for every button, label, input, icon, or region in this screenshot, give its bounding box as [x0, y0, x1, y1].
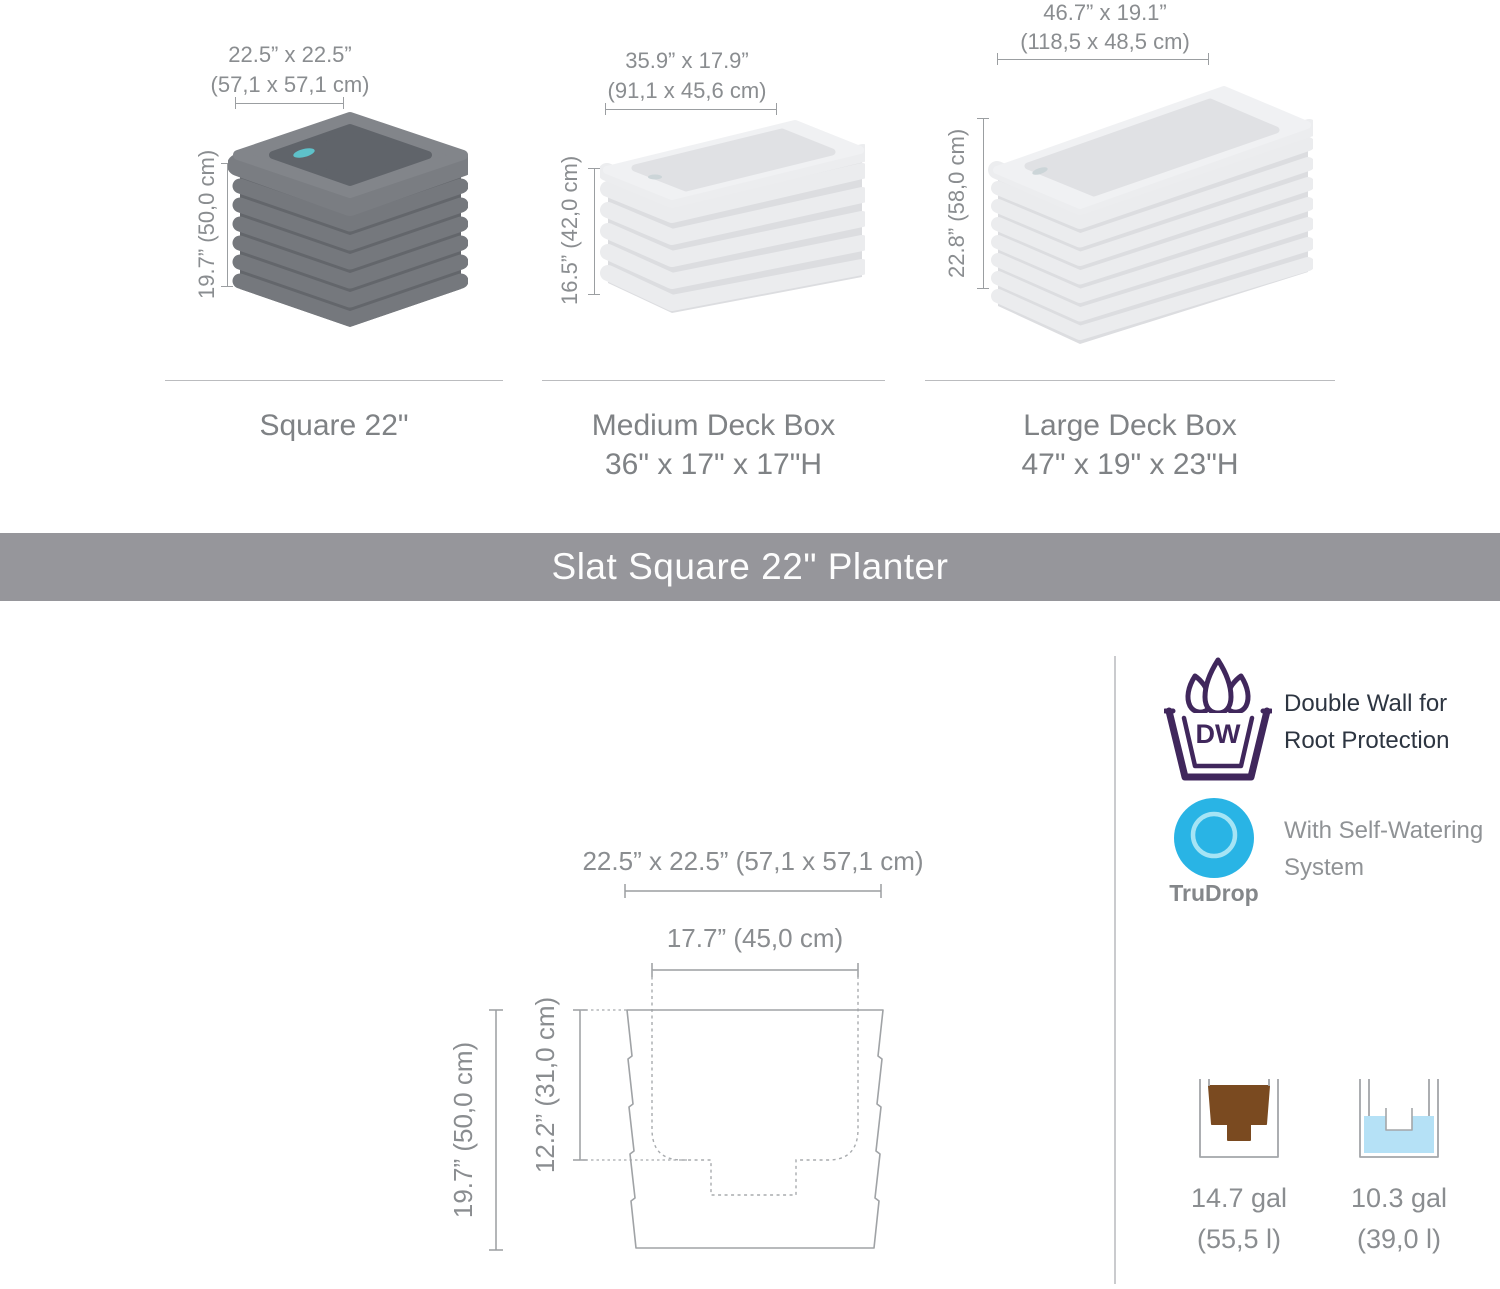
soil-capacity-label: 14.7 gal (55,5 l): [1173, 1178, 1305, 1260]
self-watering-feature-text: With Self-Watering System: [1284, 812, 1483, 886]
soil-fill: [1209, 1086, 1269, 1140]
product-size: 36" x 17" x 17"H: [542, 445, 885, 484]
trudrop-wordmark: TruDrop: [1158, 880, 1270, 907]
width-cm: (91,1 x 45,6 cm): [557, 76, 817, 106]
dw-badge-text: DW: [1196, 719, 1241, 749]
width-dimension-line: [997, 53, 1209, 65]
width-dimension-line: [605, 103, 777, 115]
width-inches: 35.9” x 17.9”: [557, 46, 817, 76]
medium-deck-box-dimensions: 35.9” x 17.9” (91,1 x 45,6 cm): [557, 46, 817, 106]
drawing-top-width-label: 22.5” x 22.5” (57,1 x 57,1 cm): [582, 846, 923, 876]
planter-outline: [627, 1010, 883, 1248]
product-label-square: Square 22": [165, 380, 503, 445]
planter-size-infographic: 22.5” x 22.5” (57,1 x 57,1 cm) 19.7” (50…: [0, 0, 1500, 1289]
width-cm: (118,5 x 48,5 cm): [975, 27, 1235, 56]
height-label: 22.8” (58,0 cm): [942, 113, 972, 293]
large-deck-box-dimensions: 46.7” x 19.1” (118,5 x 48,5 cm): [975, 0, 1235, 56]
medium-deck-box-illustration: [600, 115, 865, 320]
height-label: 19.7” (50,0 cm): [192, 149, 222, 299]
water-capacity-icon: [1353, 1076, 1445, 1164]
product-name: Square 22": [165, 406, 503, 445]
height-label: 16.5” (42,0 cm): [555, 155, 585, 305]
self-watering-fill-dot: [648, 175, 662, 180]
double-wall-feature-text: Double Wall for Root Protection: [1284, 685, 1449, 759]
inner-cavity-outline: [652, 970, 858, 1195]
double-wall-icon: DW: [1164, 656, 1272, 788]
square-planter-illustration: [228, 108, 468, 338]
drawing-overall-height-label: 19.7” (50,0 cm): [448, 1042, 478, 1218]
water-fill: [1364, 1116, 1434, 1153]
product-name: Large Deck Box: [925, 406, 1335, 445]
width-inches: 46.7” x 19.1”: [975, 0, 1235, 27]
square-planter-dimensions: 22.5” x 22.5” (57,1 x 57,1 cm): [160, 40, 420, 100]
product-label-large: Large Deck Box 47" x 19" x 23"H: [925, 380, 1335, 484]
product-name: Medium Deck Box: [542, 406, 885, 445]
trudrop-icon: [1173, 797, 1255, 879]
width-cm: (57,1 x 57,1 cm): [160, 70, 420, 100]
width-inches: 22.5” x 22.5”: [160, 40, 420, 70]
title-banner: Slat Square 22" Planter: [0, 533, 1500, 601]
water-capacity-label: 10.3 gal (39,0 l): [1333, 1178, 1465, 1260]
soil-capacity-icon: [1193, 1076, 1285, 1164]
product-label-medium: Medium Deck Box 36" x 17" x 17"H: [542, 380, 885, 484]
product-size: 47" x 19" x 23"H: [925, 445, 1335, 484]
drawing-opening-width-label: 17.7” (45,0 cm): [667, 923, 843, 953]
center-leaf: [1205, 660, 1231, 713]
large-deck-box-illustration: [988, 72, 1313, 352]
drawing-inner-depth-label: 12.2” (31,0 cm): [530, 997, 560, 1173]
cross-section-drawing: 22.5” x 22.5” (57,1 x 57,1 cm) 17.7” (45…: [430, 830, 940, 1270]
height-dimension-line: [588, 168, 600, 295]
vertical-divider: [1114, 656, 1116, 1284]
